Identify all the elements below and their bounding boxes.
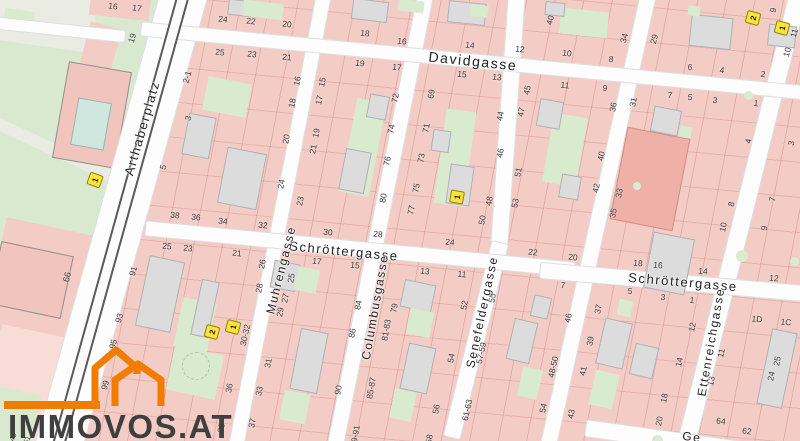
house-number: 3 — [712, 95, 718, 105]
house-number: 19 — [310, 127, 322, 138]
house-number: 89-91 — [348, 424, 362, 441]
house-number: 4 — [719, 65, 725, 75]
house-number: 12 — [515, 44, 525, 55]
house-number: 7 — [667, 90, 673, 100]
house-number: 2-1 — [181, 70, 194, 84]
house-number: 90 — [332, 384, 343, 395]
house-number: 17 — [392, 62, 402, 73]
house-number: 7 — [560, 280, 566, 290]
house-number: 3 — [183, 114, 194, 121]
house-number: 20 — [653, 415, 665, 426]
house-number: 11 — [457, 269, 467, 280]
house-number: 24 — [445, 237, 455, 248]
house-number: 16 — [397, 36, 407, 47]
house-number: 61-63 — [460, 398, 474, 421]
house-number: 44 — [494, 110, 505, 121]
street-label: Ge — [682, 429, 703, 441]
house-number: 15 — [316, 76, 328, 87]
house-number: 18 — [286, 97, 297, 108]
street-label: Columbusgasse — [359, 253, 391, 361]
house-number: 23 — [247, 49, 257, 60]
house-number: 31 — [627, 96, 639, 107]
house-number: 2 — [760, 69, 766, 79]
house-number: 79 — [388, 302, 399, 313]
house-number: 9 — [768, 6, 779, 13]
house-number: 66 — [61, 271, 73, 283]
transit-stop-marker: 2 — [204, 324, 221, 340]
house-number: 33 — [253, 385, 265, 396]
house-number: 81-83 — [379, 318, 393, 341]
house-number: 51 — [512, 166, 524, 177]
house-number: 26 — [256, 258, 268, 269]
house-number: 40 — [595, 150, 607, 161]
house-number: 34 — [618, 32, 630, 44]
house-number: 75 — [410, 182, 421, 193]
house-number: 15 — [457, 69, 467, 80]
house-number: 20 — [280, 133, 291, 144]
house-number: 22 — [246, 16, 256, 27]
house-number: 15 — [350, 260, 360, 271]
house-number: 29 — [648, 33, 660, 45]
house-number: 24 — [218, 14, 228, 25]
house-number: 36 — [191, 212, 201, 223]
house-number: 1 — [753, 98, 759, 108]
street-label: Ettenreichgasse — [695, 287, 728, 398]
house-number: 25 — [215, 47, 225, 58]
house-number: 45 — [521, 84, 533, 95]
house-number: 9 — [759, 225, 770, 232]
house-number: 21 — [232, 248, 242, 259]
house-number: 28 — [253, 282, 265, 293]
house-number: 54 — [537, 402, 549, 413]
house-number: 12 — [686, 321, 698, 332]
house-number: 31 — [262, 357, 274, 368]
house-number: 22 — [528, 247, 538, 258]
immovos-logo-text: IMMOVOS.AT — [8, 408, 233, 441]
house-number: 73 — [415, 152, 426, 163]
house-number: 21 — [282, 52, 292, 63]
house-number: 93 — [113, 312, 125, 324]
house-number: 40 — [544, 14, 556, 26]
house-number: 47 — [515, 106, 527, 117]
house-number: 10 — [781, 46, 793, 58]
house-number: 16 — [653, 260, 663, 271]
house-number: 1C — [780, 317, 792, 328]
house-number: 36 — [607, 101, 619, 112]
house-number: 20 — [568, 252, 578, 263]
house-number: 50 — [476, 214, 487, 225]
house-number: 64 — [716, 415, 727, 426]
house-number: 85-87 — [364, 376, 378, 399]
house-number: 25 — [771, 355, 783, 366]
house-number: 1 — [689, 295, 695, 305]
house-number: 41 — [577, 365, 589, 376]
house-number: 17 — [313, 94, 325, 105]
house-number: 72 — [389, 92, 400, 103]
house-number: 17 — [132, 2, 143, 13]
transit-stop-marker: 1 — [225, 319, 242, 335]
house-number: 13 — [492, 72, 502, 83]
house-number: 14 — [465, 40, 475, 51]
house-number: 5 — [627, 286, 633, 296]
house-number: 37 — [246, 417, 258, 428]
house-number: 16 — [108, 0, 119, 11]
house-number: 48-50 — [546, 355, 560, 378]
house-number: 46 — [494, 147, 505, 158]
house-number: 3 — [786, 140, 797, 147]
transit-stop-marker: 1 — [449, 189, 465, 204]
house-number: 18 — [360, 28, 370, 39]
house-number: 76 — [381, 155, 392, 166]
transit-stop-marker: 2 — [745, 10, 762, 26]
house-number: 74 — [385, 123, 396, 134]
house-number: 84 — [352, 299, 363, 310]
house-number: 14 — [673, 356, 685, 367]
house-number: 5 — [158, 163, 169, 170]
house-number: 10 — [717, 221, 729, 232]
map-canvas[interactable]: ArthaberplatzDavidgasseSchröttergasseSch… — [0, 0, 800, 441]
house-number: 32 — [258, 220, 268, 231]
house-number: 56 — [430, 403, 442, 414]
house-number: 11 — [715, 348, 727, 359]
house-number: 19 — [355, 58, 365, 69]
house-number: 9 — [602, 83, 608, 93]
house-number: 18 — [633, 258, 643, 269]
house-number: 17 — [312, 256, 322, 267]
house-number: 18 — [658, 392, 670, 403]
house-number: 8 — [726, 201, 737, 208]
house-number: 80 — [377, 192, 388, 203]
house-number: 4 — [743, 138, 754, 145]
house-number: 42 — [590, 182, 602, 193]
house-number: 30 — [323, 227, 333, 238]
house-number: 20 — [282, 19, 292, 30]
house-number: 21 — [307, 143, 319, 154]
house-number: 91 — [127, 265, 139, 277]
house-number: 3 — [660, 292, 666, 302]
house-number: 16 — [291, 75, 302, 86]
house-number: 34 — [218, 216, 228, 227]
house-number: 5 — [687, 92, 693, 102]
house-number: 48 — [483, 195, 494, 206]
house-number: 77 — [405, 204, 416, 215]
house-number: 25 — [162, 241, 172, 252]
house-number: 24 — [275, 178, 286, 189]
house-number: 11 — [560, 80, 570, 91]
house-number: 58 — [423, 433, 435, 441]
house-number: 62 — [742, 425, 753, 436]
house-number: 37 — [592, 303, 604, 314]
house-number: 71 — [420, 122, 431, 133]
house-number: 23 — [294, 195, 306, 206]
house-number: 13 — [420, 266, 430, 277]
house-number: 12 — [769, 273, 779, 284]
house-number: 53 — [509, 197, 521, 208]
house-number: 39 — [584, 335, 596, 346]
house-number: 7 — [767, 196, 778, 203]
house-number: 10 — [562, 48, 572, 59]
house-number: 52 — [458, 299, 470, 310]
street-label: Davidgasse — [428, 48, 518, 73]
house-number: 33 — [613, 187, 625, 198]
street-label: Arthaberplatz — [121, 79, 162, 177]
house-number: 19 — [126, 32, 138, 44]
house-number: 46 — [562, 312, 574, 323]
house-number: 1D — [751, 314, 763, 325]
house-number: 69 — [425, 88, 436, 99]
house-number: 11 — [788, 27, 800, 38]
house-number: 8 — [608, 54, 614, 64]
transit-stop-marker: 1 — [86, 171, 104, 188]
house-number: 28 — [373, 229, 383, 240]
house-number: 6 — [687, 62, 693, 72]
house-number: 38 — [170, 210, 180, 221]
house-number: 35 — [607, 207, 619, 218]
house-number: 24 — [765, 370, 777, 381]
house-number: 23 — [183, 243, 193, 254]
house-number: 14 — [698, 266, 708, 277]
house-number: 54 — [445, 352, 457, 363]
house-number: 43 — [565, 408, 577, 419]
house-number: 86 — [346, 327, 357, 338]
